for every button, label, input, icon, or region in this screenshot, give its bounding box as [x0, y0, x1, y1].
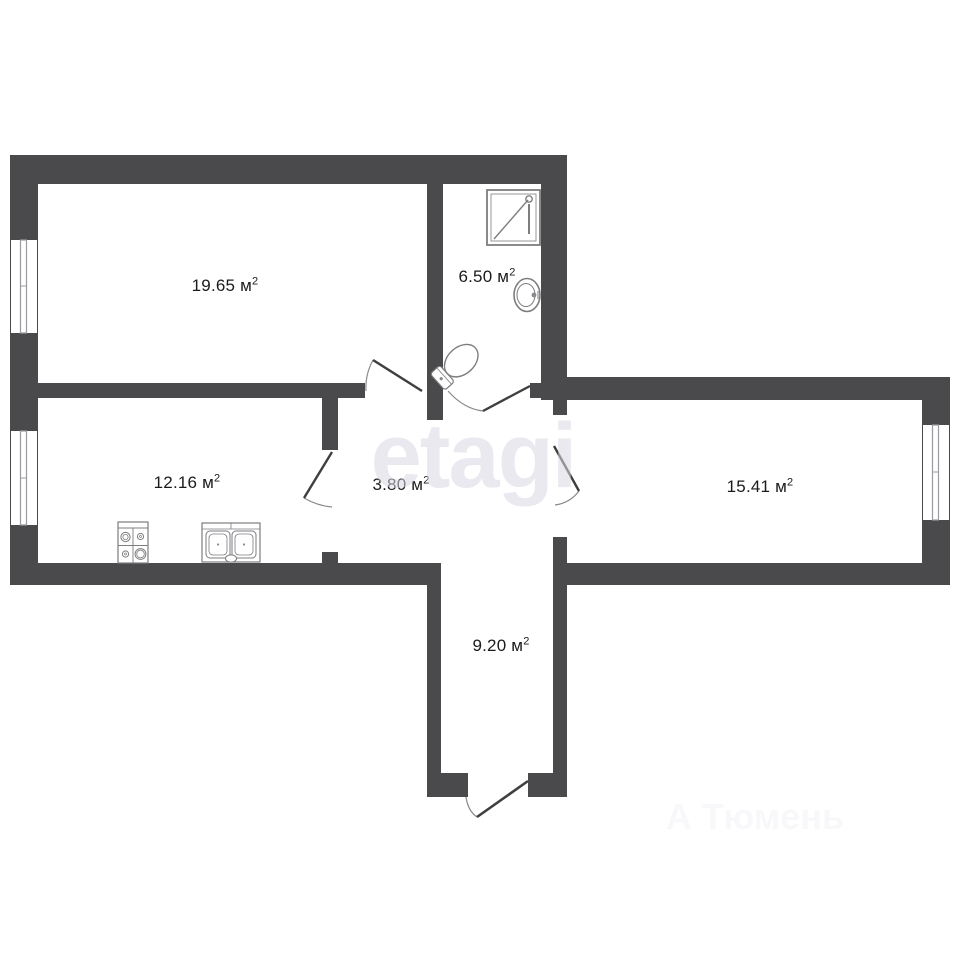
area-unit: м: [492, 267, 509, 286]
shower-icon: [487, 190, 540, 245]
area-sup: 2: [787, 476, 793, 488]
door-arc: [366, 360, 373, 391]
room-label-room-right: 15.41 м2: [690, 478, 830, 496]
wall-mid-left: [10, 383, 365, 398]
area-value: 15.41: [727, 477, 771, 496]
window-room-right: [923, 425, 949, 520]
kitchen-sink-icon: [202, 523, 260, 562]
room-label-living-room: 19.65 м2: [155, 277, 295, 295]
wall-corridor-right-stub: [528, 773, 567, 797]
door-leaf: [304, 452, 332, 498]
room-label-kitchen: 12.16 м2: [117, 474, 257, 492]
wall-corridor-left: [427, 585, 441, 797]
door-living-room: [366, 360, 422, 391]
wall-hall-room-divider-lower: [553, 537, 567, 564]
area-unit: м: [770, 477, 787, 496]
door-kitchen: [304, 452, 332, 507]
area-unit: м: [197, 473, 214, 492]
door-entrance: [466, 781, 528, 817]
stove-icon: [118, 522, 148, 563]
wall-kitchen-divider-lower: [322, 552, 338, 564]
wall-bottom-room-right: [553, 563, 950, 585]
area-value: 6.50: [458, 267, 492, 286]
floor-plan: 19.65 м2 6.50 м2 12.16 м2 3.80 м2 15.41 …: [0, 0, 960, 960]
wall-corridor-left-stub: [427, 773, 468, 797]
area-value: 9.20: [472, 636, 506, 655]
area-value: 12.16: [154, 473, 198, 492]
wall-room-right-top: [541, 377, 950, 400]
door-leaf: [477, 781, 528, 817]
area-sup: 2: [509, 266, 515, 278]
area-unit: м: [235, 276, 252, 295]
window-living-room: [11, 240, 37, 333]
door-arc: [304, 498, 332, 507]
area-sup: 2: [523, 635, 529, 647]
room-label-corridor: 9.20 м2: [431, 637, 571, 655]
watermark-bottom-faint: А Тюмень: [640, 796, 870, 838]
area-sup: 2: [214, 472, 220, 484]
wall-top: [10, 155, 567, 184]
wall-kitchen-divider-upper: [322, 398, 338, 450]
room-label-bathroom: 6.50 м2: [417, 268, 557, 286]
watermark-etagi: etagi: [338, 404, 608, 509]
door-arc: [466, 797, 477, 817]
area-unit: м: [506, 636, 523, 655]
door-leaf: [373, 360, 422, 391]
area-sup: 2: [252, 275, 258, 287]
window-kitchen: [11, 431, 37, 525]
wall-bottom-kitchen: [10, 563, 441, 585]
wall-corridor-right: [553, 585, 567, 797]
area-value: 19.65: [192, 276, 236, 295]
